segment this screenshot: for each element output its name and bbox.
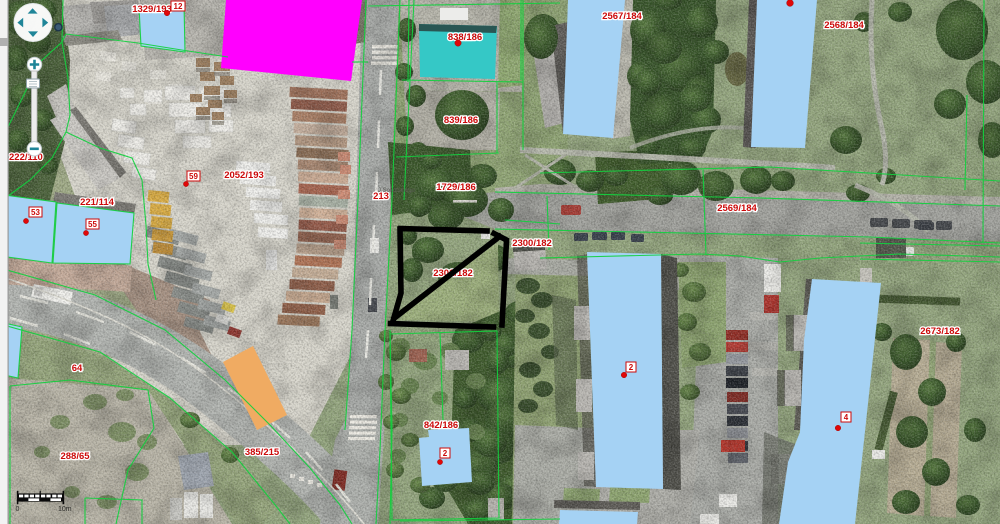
svg-text:838/186: 838/186 xyxy=(448,32,482,43)
svg-text:2568/184: 2568/184 xyxy=(824,20,864,31)
svg-text:2673/182: 2673/182 xyxy=(920,326,960,337)
svg-text:288/65: 288/65 xyxy=(60,451,90,462)
svg-text:59: 59 xyxy=(189,172,198,181)
svg-text:2: 2 xyxy=(629,363,634,372)
svg-text:53: 53 xyxy=(31,208,40,217)
svg-text:2567/184: 2567/184 xyxy=(602,11,642,22)
svg-text:839/186: 839/186 xyxy=(444,115,478,126)
svg-text:2: 2 xyxy=(443,449,448,458)
svg-text:1729/186: 1729/186 xyxy=(436,182,476,193)
svg-text:842/186: 842/186 xyxy=(424,420,458,431)
svg-text:2300/182: 2300/182 xyxy=(512,238,552,249)
svg-text:2052/193: 2052/193 xyxy=(224,170,264,181)
svg-text:64: 64 xyxy=(72,363,83,374)
svg-text:221/114: 221/114 xyxy=(80,197,115,208)
svg-text:2569/184: 2569/184 xyxy=(717,203,757,214)
svg-text:12: 12 xyxy=(174,2,183,11)
svg-text:4: 4 xyxy=(844,413,849,422)
svg-text:385/215: 385/215 xyxy=(245,447,280,458)
svg-text:55: 55 xyxy=(88,220,97,229)
svg-text:10m: 10m xyxy=(58,506,72,513)
svg-text:J.Sokolskiego: J.Sokolskiego xyxy=(378,188,416,194)
svg-text:0: 0 xyxy=(16,506,20,513)
